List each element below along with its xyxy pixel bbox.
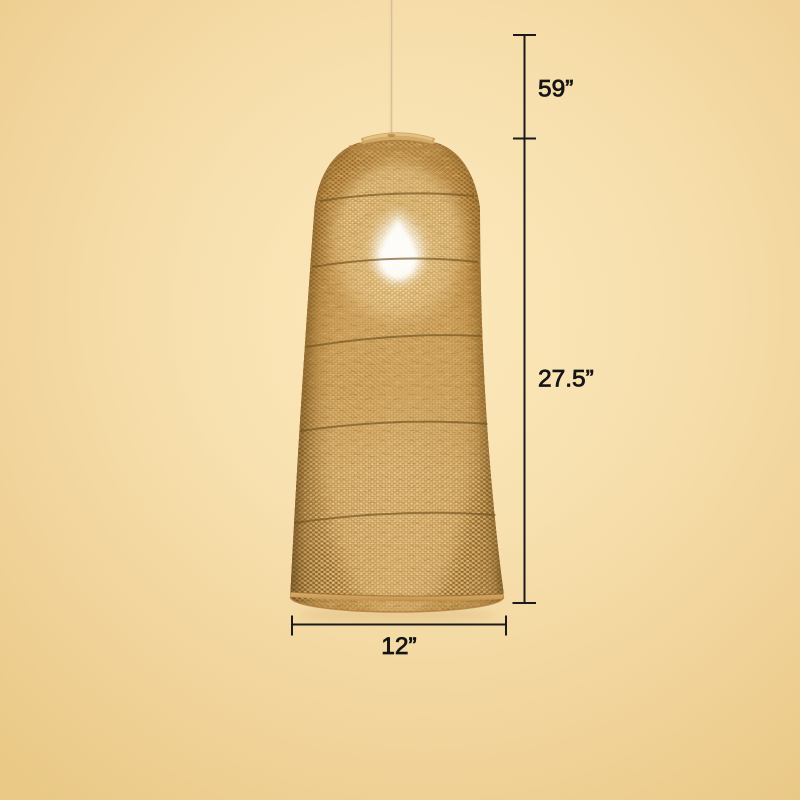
svg-text:27.5”: 27.5” [538,366,594,393]
svg-text:12”: 12” [381,633,416,660]
svg-text:59”: 59” [538,76,573,103]
